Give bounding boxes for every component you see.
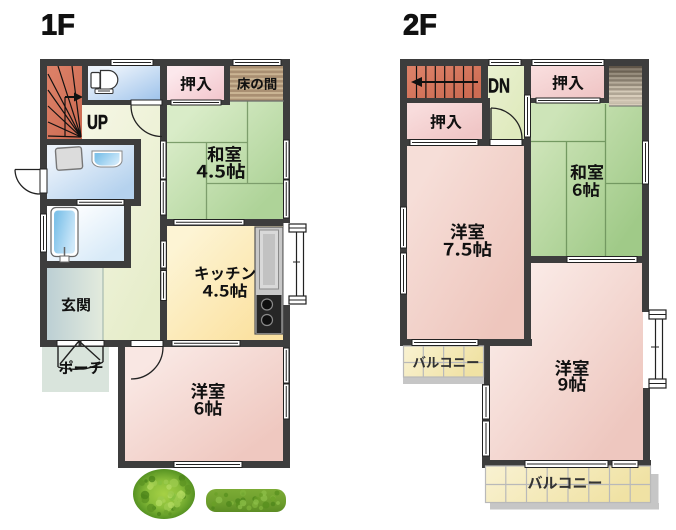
svg-text:UP: UP <box>87 112 108 134</box>
svg-text:DN: DN <box>488 76 510 98</box>
svg-text:1F: 1F <box>41 10 75 42</box>
svg-text:2F: 2F <box>403 10 437 42</box>
